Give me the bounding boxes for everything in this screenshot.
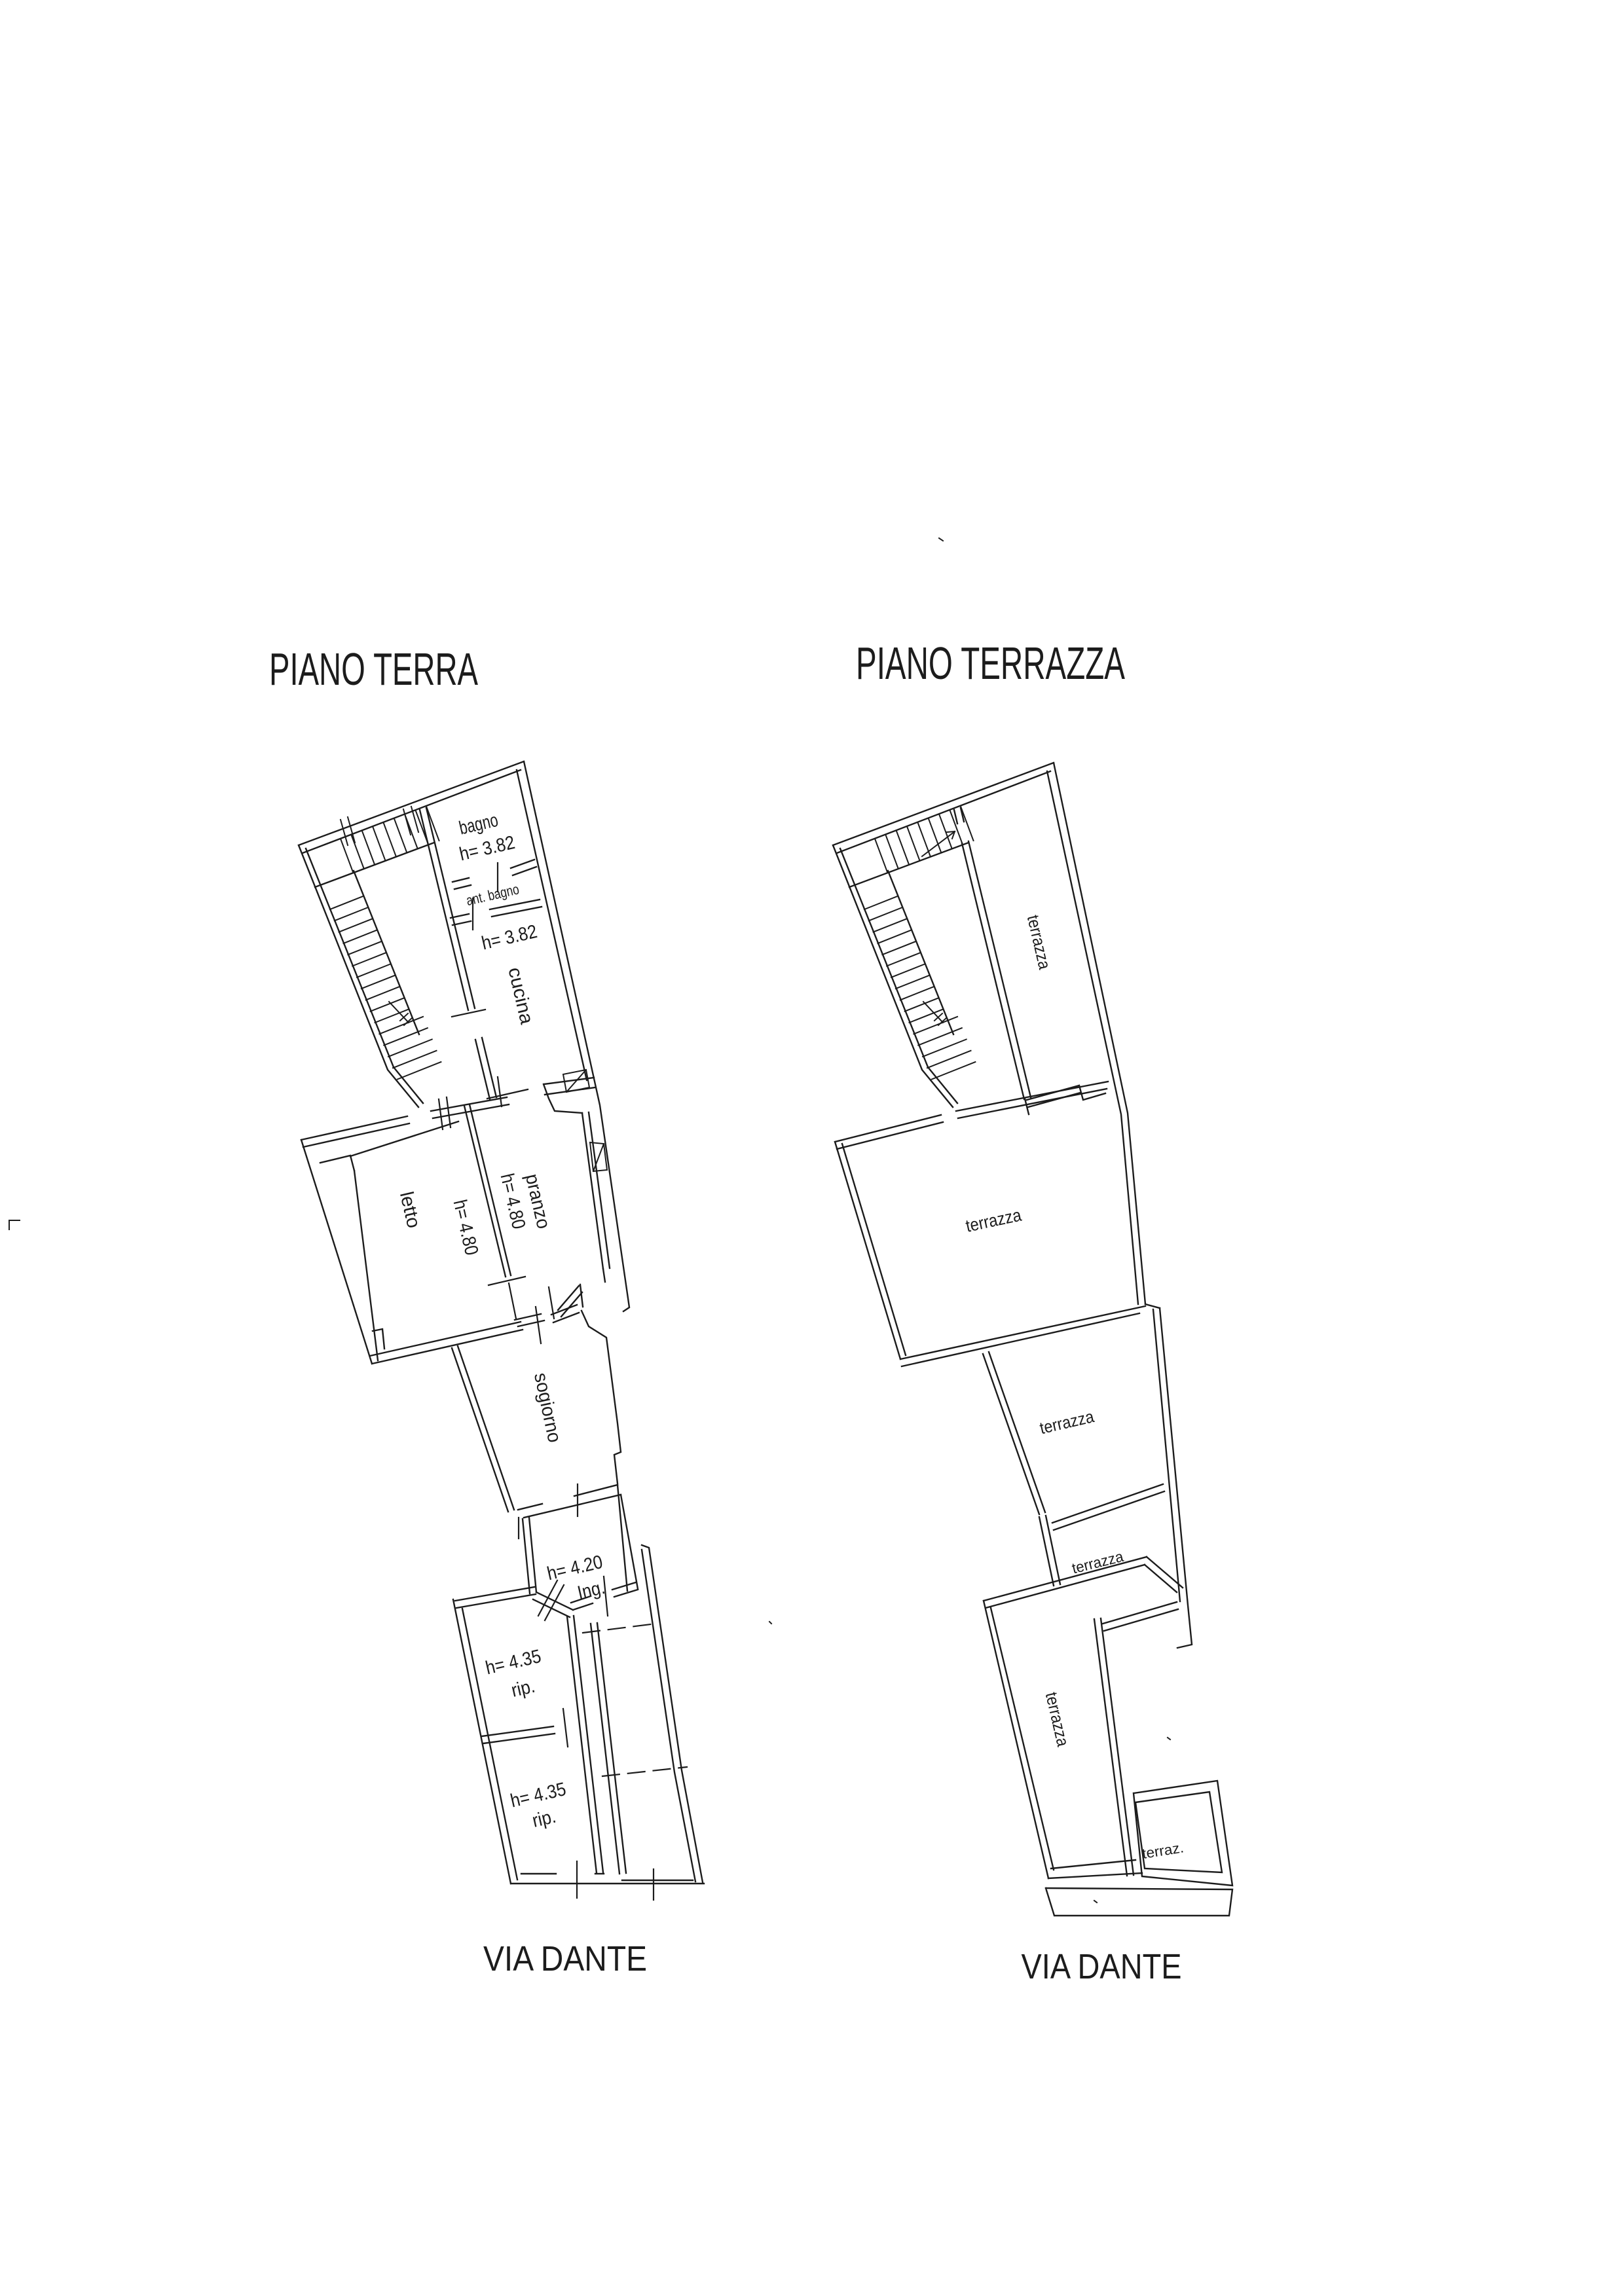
- svg-text:VIA DANTE: VIA DANTE: [1022, 1947, 1182, 1986]
- svg-text:VIA DANTE: VIA DANTE: [483, 1939, 647, 1978]
- svg-text:PIANO TERRAZZA: PIANO TERRAZZA: [856, 638, 1125, 689]
- svg-text:PIANO TERRA: PIANO TERRA: [269, 644, 478, 695]
